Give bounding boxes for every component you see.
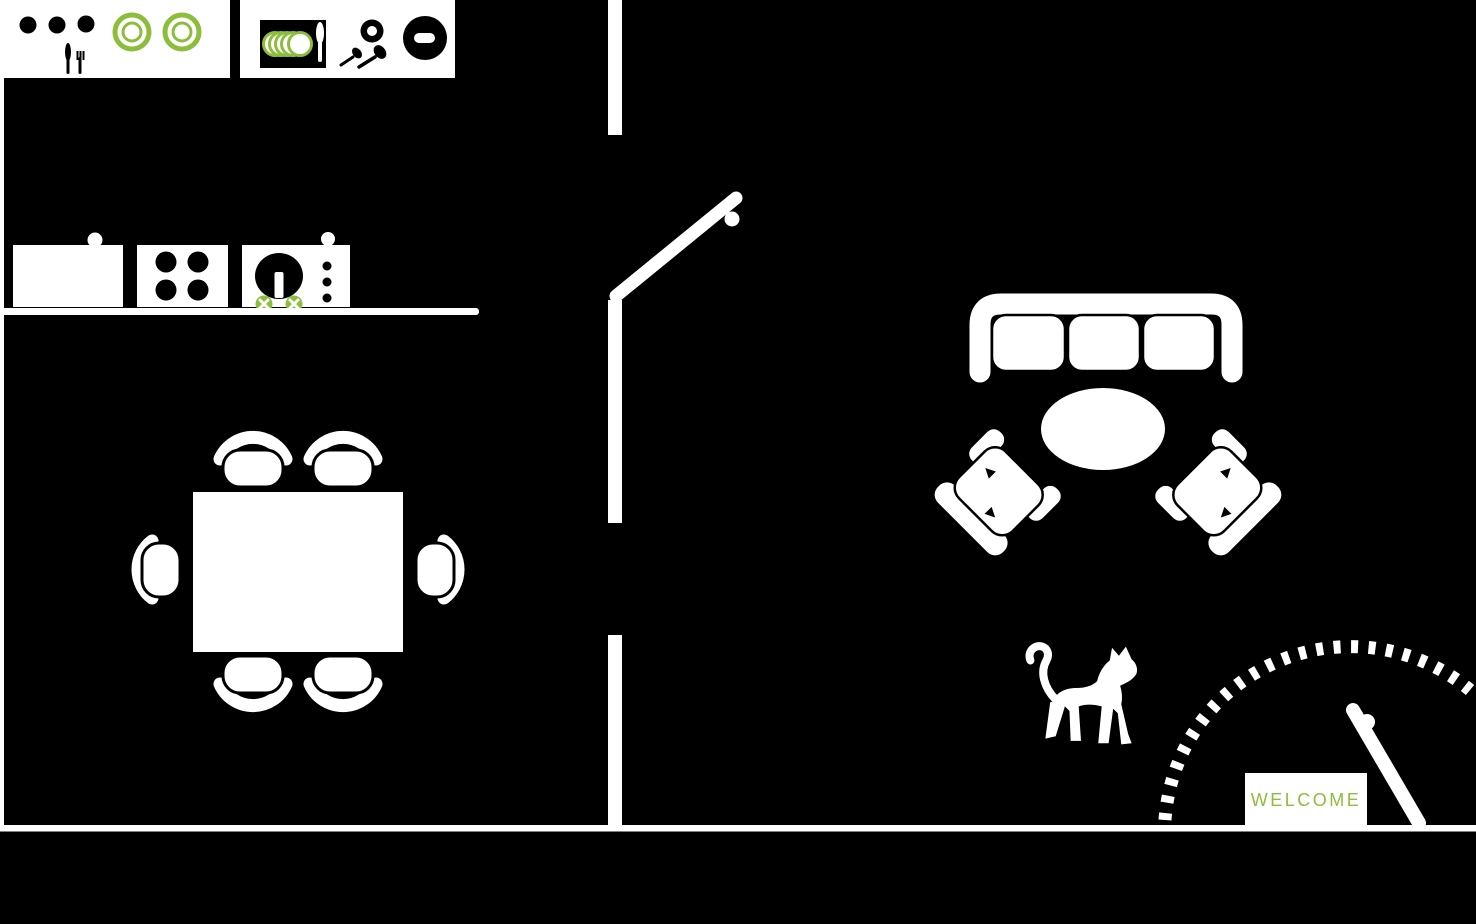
entry-door-knob-icon [1359,714,1375,730]
sink [242,232,350,313]
pot-icon [403,16,447,60]
cat-icon [1030,646,1138,744]
chair-seat [223,656,283,693]
stacked-plates-icon [264,33,312,56]
burner-icon [156,252,177,273]
chair-seat [223,450,283,487]
coffee-table [1041,388,1165,470]
cooktop [137,245,228,307]
faucet-icon [275,272,284,298]
center-wall-middle [608,300,622,523]
burner-icon [156,280,177,301]
dot-icon [49,17,66,34]
armchair-right [1152,426,1289,563]
walls [0,0,1476,832]
burner-icon [188,252,209,273]
dining-set [138,437,458,705]
interior-door-knob-icon [725,212,740,227]
center-wall-lower [608,635,622,825]
dot-icon [20,17,37,34]
chair-seat [416,543,454,597]
welcome-mat: WELCOME [1245,773,1367,826]
dot-icon [78,16,95,33]
interior-door-leaf [616,198,736,296]
dining-table [193,492,403,652]
bowl-icon [361,20,384,43]
fridge [13,245,123,307]
burner-icon [188,280,209,301]
left-wall [0,0,4,825]
kitchen-counter-edge [0,308,479,315]
armchair-left [927,426,1064,563]
dial-icon [323,262,332,271]
upper-counter-tray [240,0,455,78]
knob-icon [321,232,335,246]
sofa [980,304,1232,372]
chair-seat [142,543,180,597]
sofa-cushion [1068,315,1140,371]
upper-counter-dishes [0,0,230,78]
interior-door [616,198,740,296]
kitchen-appliances [0,232,479,315]
sofa-cushion [1143,315,1215,371]
floor-plan: WELCOME [0,0,1476,924]
chair-seat [313,450,373,487]
chair-seat [313,656,373,693]
sofa-cushion [992,315,1065,371]
welcome-mat-label: WELCOME [1251,791,1362,809]
dial-icon [323,278,332,287]
center-wall-upper [608,0,622,135]
dial-icon [323,294,332,303]
